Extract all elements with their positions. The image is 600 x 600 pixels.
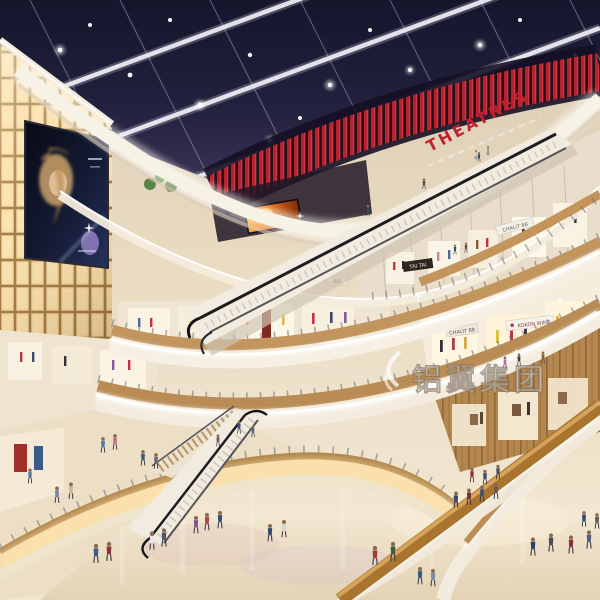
art-frame	[558, 392, 567, 404]
rendering-canvas: THEATRES	[0, 0, 600, 600]
art-frame	[470, 414, 478, 425]
watermark-text: 铝翼集团	[412, 363, 548, 398]
art-frame	[512, 404, 521, 416]
mall-atrium-rendering: THEATRES	[0, 0, 600, 600]
